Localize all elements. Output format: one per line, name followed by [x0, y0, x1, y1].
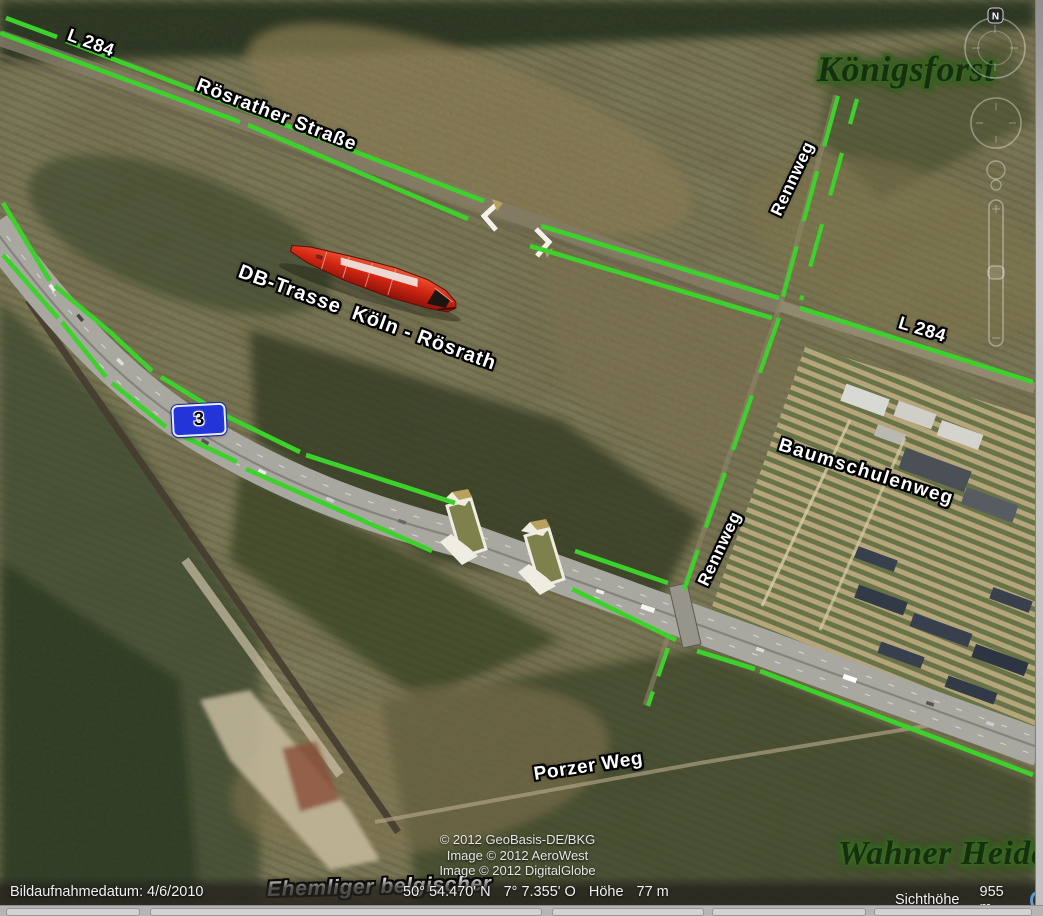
- zoom-slider-thumb[interactable]: [988, 266, 1004, 279]
- pan-joystick[interactable]: [971, 98, 1021, 148]
- aerial-imagery[interactable]: [0, 0, 1035, 905]
- status-bar: Bildaufnahmedatum: 4/6/2010 50° 54.470' …: [0, 876, 1035, 905]
- look-joystick[interactable]: [987, 161, 1005, 190]
- compass-ring[interactable]: [965, 18, 1025, 78]
- longitude-readout: 7° 7.355' O: [504, 884, 576, 900]
- elevation-label: Höhe: [589, 884, 624, 900]
- attribution-line-2: Image © 2012 AeroWest: [0, 848, 1035, 864]
- h-scrollbar-thumb[interactable]: [6, 908, 140, 916]
- navigation-controls: N: [955, 0, 1035, 360]
- h-scrollbar-segment[interactable]: [712, 908, 866, 916]
- imagery-date: Bildaufnahmedatum: 4/6/2010: [10, 884, 203, 900]
- vertical-scrollbar[interactable]: [1035, 0, 1043, 905]
- h-scrollbar-segment[interactable]: [874, 908, 1032, 916]
- elevation-readout: 77 m: [637, 884, 669, 900]
- latitude-readout: 50° 54.470' N: [403, 884, 491, 900]
- google-earth-view: L 284 Rösrather Straße Königsforst Rennw…: [0, 0, 1043, 916]
- horizontal-scrollbar[interactable]: [0, 905, 1043, 916]
- north-button[interactable]: N: [988, 8, 1003, 23]
- imagery-attribution: © 2012 GeoBasis-DE/BKG Image © 2012 Aero…: [0, 832, 1035, 879]
- attribution-line-1: © 2012 GeoBasis-DE/BKG: [0, 832, 1035, 848]
- north-compass-letter: N: [992, 12, 999, 23]
- autobahn-3-shield-icon: 3: [171, 403, 227, 438]
- h-scrollbar-segment[interactable]: [150, 908, 542, 916]
- autobahn-number: 3: [193, 409, 205, 432]
- h-scrollbar-segment[interactable]: [552, 908, 704, 916]
- zoom-slider[interactable]: [988, 200, 1004, 346]
